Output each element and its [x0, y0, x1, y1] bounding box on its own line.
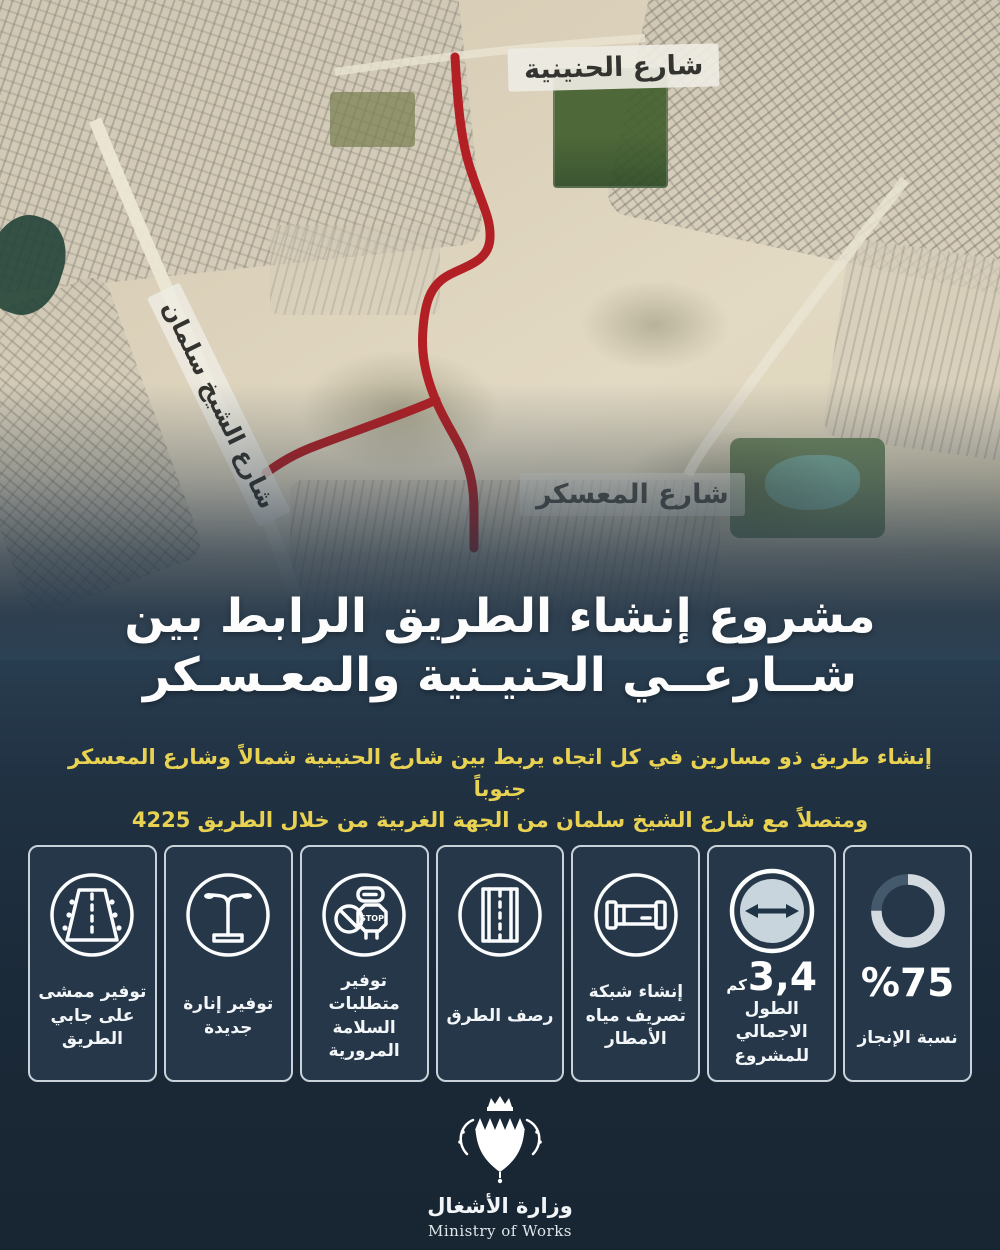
description-line-2: ومتصلاً مع شارع الشيخ سلمان من الجهة الغ…	[40, 805, 960, 837]
card-label: إنشاء شبكة تصريف مياه الأمطار	[578, 965, 693, 1068]
length-value: 3,4	[748, 958, 817, 997]
ministry-name-english: Ministry of Works	[0, 1222, 1000, 1240]
traffic-signs-icon: STOP	[318, 865, 410, 965]
double-arrow-icon	[726, 865, 818, 957]
bahrain-emblem-icon	[435, 1092, 565, 1188]
ministry-name-arabic: وزارة الأشغال	[0, 1194, 1000, 1218]
donut-chart-icon	[864, 865, 952, 957]
card-safety: STOP توفير متطلبات السلامة المرورية	[300, 845, 429, 1082]
description-line-1: إنشاء طريق ذو مسارين في كل اتجاه يربط بي…	[40, 742, 960, 805]
card-label: رصف الطرق	[445, 965, 556, 1068]
infographic-poster: شارع الحنينية شارع الشيخ سلمان شارع المع…	[0, 0, 1000, 1250]
card-label: الطول الاجمالي للمشروع	[714, 998, 829, 1068]
street-lamp-icon	[182, 865, 274, 965]
stat-cards-row: %75 نسبة الإنجاز 3,4 كم الطول الاجمالي ل…	[28, 845, 972, 1082]
map-fade-overlay	[0, 0, 1000, 660]
page-title: مشروع إنشاء الطريق الرابط بين شــارعــي …	[0, 588, 1000, 706]
card-label: نسبة الإنجاز	[856, 1009, 960, 1068]
road-icon	[454, 865, 546, 965]
card-total-length: 3,4 كم الطول الاجمالي للمشروع	[707, 845, 836, 1082]
length-unit: كم	[726, 976, 747, 998]
footer: وزارة الأشغال Ministry of Works	[0, 1092, 1000, 1240]
road-walkway-icon	[46, 865, 138, 965]
card-completion: %75 نسبة الإنجاز	[843, 845, 972, 1082]
project-description: إنشاء طريق ذو مسارين في كل اتجاه يربط بي…	[40, 742, 960, 837]
card-label: توفير ممشى على جابي الطريق	[35, 965, 150, 1068]
card-lighting: توفير إنارة جديدة	[164, 845, 293, 1082]
card-label: توفير إنارة جديدة	[171, 965, 286, 1068]
card-walkway: توفير ممشى على جابي الطريق	[28, 845, 157, 1082]
card-drainage: إنشاء شبكة تصريف مياه الأمطار	[571, 845, 700, 1082]
pipe-icon	[590, 865, 682, 965]
card-label: توفير متطلبات السلامة المرورية	[307, 965, 422, 1068]
title-line-2: شــارعــي الحنيـنية والمعـسـكر	[0, 647, 1000, 706]
title-line-1: مشروع إنشاء الطريق الرابط بين	[0, 588, 1000, 647]
completion-percent: %75	[861, 964, 954, 1003]
card-paving: رصف الطرق	[436, 845, 565, 1082]
satellite-map: شارع الحنينية شارع الشيخ سلمان شارع المع…	[0, 0, 1000, 660]
